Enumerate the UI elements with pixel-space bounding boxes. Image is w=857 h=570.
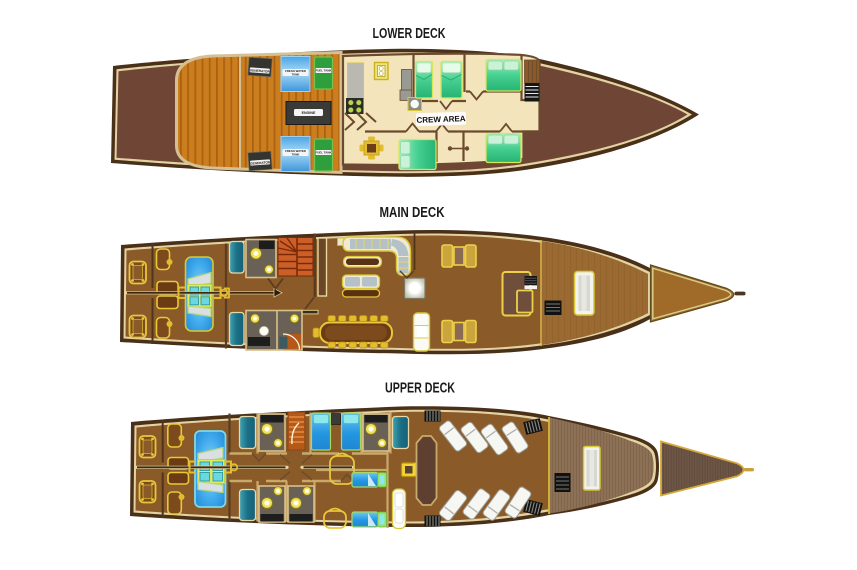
- svg-text:FUEL TANK: FUEL TANK: [315, 151, 332, 155]
- svg-text:TANK: TANK: [292, 72, 301, 76]
- svg-text:ENGINE: ENGINE: [302, 111, 316, 115]
- svg-text:CREW AREA: CREW AREA: [416, 114, 466, 125]
- svg-text:FUEL TANK: FUEL TANK: [315, 69, 332, 73]
- svg-text:UPPER DECK: UPPER DECK: [385, 381, 455, 397]
- svg-text:LOWER DECK: LOWER DECK: [373, 26, 446, 42]
- svg-text:MAIN DECK: MAIN DECK: [380, 205, 445, 221]
- svg-text:TANK: TANK: [292, 152, 301, 156]
